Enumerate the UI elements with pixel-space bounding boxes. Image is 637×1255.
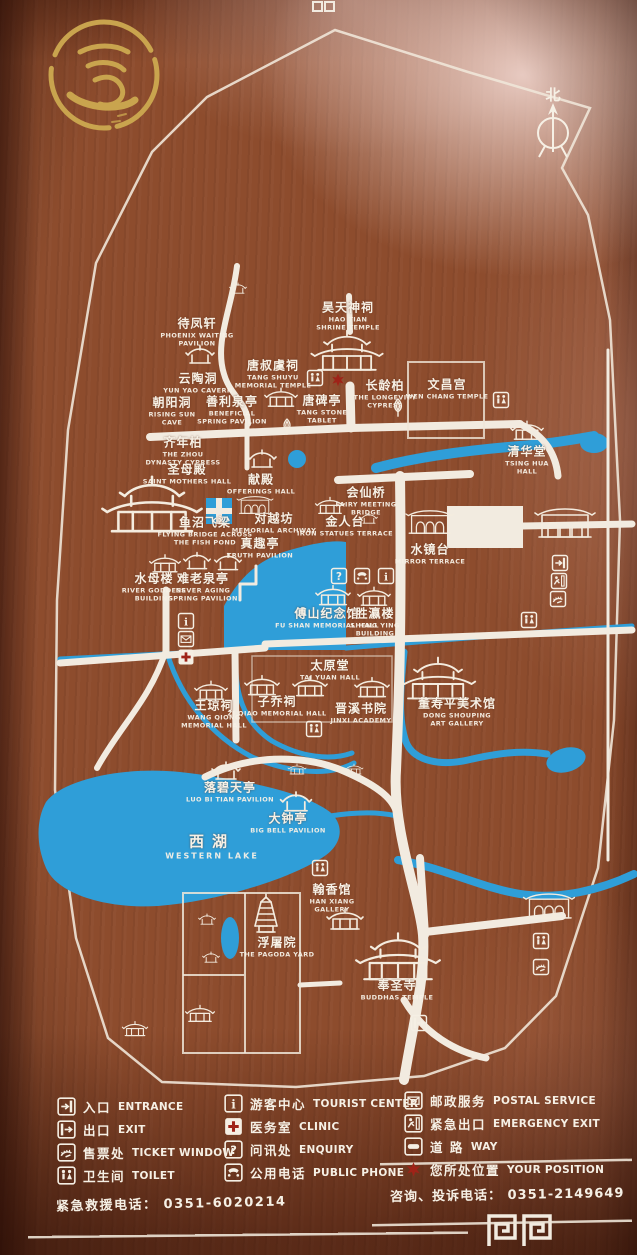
hall-icon (195, 681, 227, 699)
legend-zh-label: 道 路 (430, 1137, 464, 1156)
legend-item-phone: 公用电话PUBLIC PHONE (224, 1163, 418, 1182)
legend-item-way: 道 路WAY (404, 1137, 604, 1156)
ticket-icon (551, 592, 566, 607)
legend-en-label: YOUR POSITION (507, 1164, 604, 1176)
legend-en-label: TOURIST CENTER (313, 1098, 418, 1110)
legend-en-label: EMERGENCY EXIT (493, 1118, 600, 1130)
pavilion-icon (203, 952, 220, 962)
toilet-icon (522, 613, 537, 628)
pavilion-icon (215, 554, 242, 570)
emergency-phone-label: 紧急救援电话： (56, 1197, 158, 1214)
pavilion-icon (361, 513, 378, 523)
legend-zh-label: 问讯处 (250, 1140, 292, 1159)
emergency-icon (404, 1114, 423, 1133)
enquiry-phone-label: 咨询、投诉电话： (390, 1188, 502, 1205)
hall-icon (293, 677, 327, 696)
phone-icon (224, 1163, 243, 1182)
legend: 入口ENTRANCE出口EXIT售票处TICKET WINDOW卫生间TOILE… (0, 1088, 637, 1198)
svg-text:i: i (231, 1097, 236, 1111)
exit-icon (57, 1120, 76, 1139)
toilet-icon (307, 722, 322, 737)
hall-icon (150, 555, 181, 572)
postal-icon (179, 632, 194, 647)
bottom-ornament (489, 1216, 550, 1246)
legend-item-toilet: 卫生间TOILET (57, 1166, 234, 1185)
ticket-icon (57, 1143, 76, 1162)
legend-zh-label: 售票处 (83, 1143, 125, 1162)
hall-icon (186, 1005, 215, 1021)
enquiry-icon: ? (224, 1140, 243, 1159)
legend-item-ticket: 售票处TICKET WINDOW (57, 1143, 234, 1162)
legend-column: i游客中心TOURIST CENTER医务室CLINIC?问讯处ENQUIRY公… (224, 1094, 418, 1182)
legend-item-enquiry: ?问讯处ENQUIRY (224, 1140, 418, 1159)
toilet-icon (57, 1166, 76, 1185)
legend-zh-label: 公用电话 (250, 1163, 306, 1182)
emergency-phone-number: 0351-6020214 (163, 1194, 286, 1212)
ticket-icon (534, 960, 549, 975)
legend-en-label: TICKET WINDOW (132, 1147, 234, 1159)
legend-zh-label: 紧急出口 (430, 1114, 486, 1133)
legend-column: 入口ENTRANCE出口EXIT售票处TICKET WINDOW卫生间TOILE… (57, 1097, 234, 1185)
svg-text:?: ? (230, 1143, 237, 1157)
legend-en-label: ENQUIRY (299, 1144, 354, 1156)
toilet-icon (534, 934, 549, 949)
pavilion-icon (199, 914, 216, 924)
hall-large-icon (401, 658, 475, 699)
hall-icon (245, 676, 279, 695)
svg-text:i: i (384, 570, 388, 583)
info-icon: i (179, 614, 194, 629)
flying-bridge-cross-icon (206, 498, 232, 524)
info-icon: i (379, 569, 394, 584)
position-icon (332, 374, 344, 387)
legend-item-postal: 邮政服务POSTAL SERVICE (404, 1091, 604, 1110)
map-graphic: ?ii 北 (0, 0, 637, 1255)
pavilion-icon (248, 450, 276, 467)
legend-item-position: 您所处位置YOUR POSITION (404, 1160, 604, 1179)
north-indicator: 北 (538, 86, 568, 157)
mirror-terrace-platform (447, 506, 523, 548)
legend-item-info: i游客中心TOURIST CENTER (224, 1094, 418, 1113)
legend-en-label: CLINIC (299, 1121, 340, 1133)
top-ornament (313, 2, 334, 11)
legend-zh-label: 出口 (83, 1120, 111, 1139)
clinic-icon (224, 1117, 243, 1136)
park-map-board: ?ii 北 (0, 0, 637, 1255)
svg-text:i: i (184, 615, 188, 628)
western-lake-shape (39, 771, 340, 907)
way-icon (404, 1137, 423, 1156)
roads (60, 266, 632, 1080)
clinic-icon (179, 650, 194, 665)
legend-en-label: WAY (471, 1141, 498, 1153)
legend-item-exit: 出口EXIT (57, 1120, 234, 1139)
pavilion-icon (186, 346, 214, 363)
pagoda-icon (255, 894, 277, 932)
north-label: 北 (545, 86, 560, 104)
postal-icon (404, 1091, 423, 1110)
phone-icon (355, 569, 370, 584)
svg-text:?: ? (336, 572, 342, 583)
toilet-icon (313, 861, 328, 876)
info-icon: i (224, 1094, 243, 1113)
enquiry-phone-number: 0351-2149649 (507, 1186, 624, 1203)
legend-en-label: POSTAL SERVICE (493, 1095, 596, 1107)
legend-item-emergency: 紧急出口EMERGENCY EXIT (404, 1114, 604, 1133)
pagoda-yard-enclosure (183, 893, 300, 1053)
toilet-icon (494, 393, 509, 408)
legend-item-entrance: 入口ENTRANCE (57, 1097, 234, 1116)
hall-icon (355, 678, 389, 697)
legend-zh-label: 医务室 (250, 1117, 292, 1136)
position-icon (404, 1160, 423, 1179)
gate-icon (237, 497, 273, 514)
hall-icon (122, 1022, 147, 1036)
hall-large-icon (311, 331, 382, 370)
legend-zh-label: 游客中心 (250, 1094, 306, 1113)
legend-column: 邮政服务POSTAL SERVICE紧急出口EMERGENCY EXIT道 路W… (404, 1091, 604, 1179)
legend-zh-label: 邮政服务 (430, 1091, 486, 1110)
entrance-icon (57, 1097, 76, 1116)
tree-icon (395, 399, 402, 416)
legend-item-clinic: 医务室CLINIC (224, 1117, 418, 1136)
pavilion-icon (184, 553, 211, 569)
hall-icon (265, 388, 297, 406)
legend-en-label: TOILET (132, 1170, 175, 1182)
emergency-icon (552, 574, 567, 589)
entrance-icon (553, 556, 568, 571)
legend-en-label: ENTRANCE (118, 1101, 183, 1113)
hall-large-icon (102, 477, 201, 531)
legend-zh-label: 您所处位置 (430, 1160, 500, 1179)
hall-icon (327, 909, 363, 929)
park-logo-seal (51, 22, 157, 128)
hall-icon (358, 587, 390, 605)
legend-zh-label: 卫生间 (83, 1166, 125, 1185)
gate-icon (406, 511, 454, 533)
legend-en-label: PUBLIC PHONE (313, 1167, 404, 1179)
toilet-icon (308, 371, 323, 386)
legend-en-label: EXIT (118, 1124, 146, 1136)
hall-icon (316, 497, 345, 513)
legend-zh-label: 入口 (83, 1097, 111, 1116)
